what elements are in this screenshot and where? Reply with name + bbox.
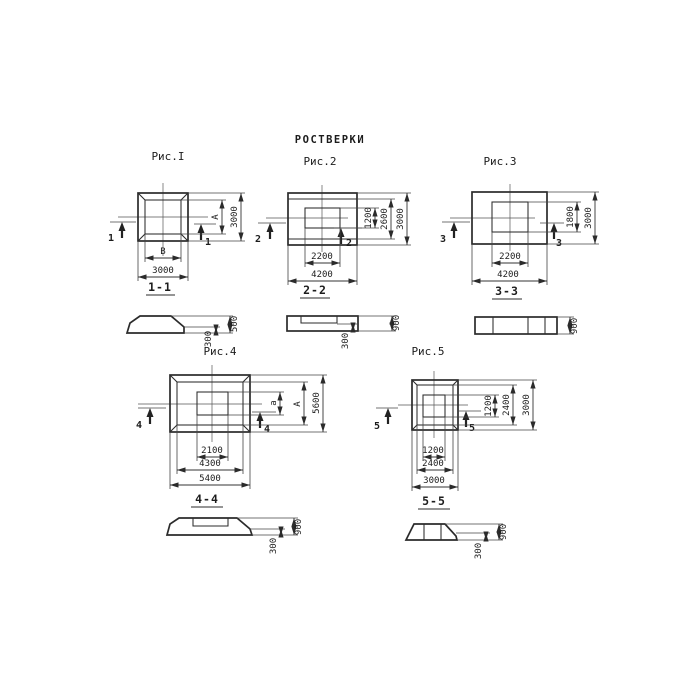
fig4-section-view: 900 300 xyxy=(167,518,304,554)
fig4-dim-mid-height: A xyxy=(293,401,303,407)
fig1-dim-outer-height: 3000 xyxy=(230,206,240,228)
fig5-section-dim-total: 900 xyxy=(499,524,509,540)
fig3-section-title: 3-3 xyxy=(492,284,522,299)
fig3-dim-inner-height: 1800 xyxy=(566,206,576,228)
fig2-dim-outer-width: 4200 xyxy=(311,270,333,280)
fig4-cut-mark-inner: 4 xyxy=(252,412,276,435)
fig4-section-dim-total: 900 xyxy=(294,519,304,535)
fig4-bottom-dims: 2100 4300 5400 xyxy=(170,415,250,489)
fig5-dim-inner-height: 1200 xyxy=(484,395,494,417)
fig3-caption: Рис.3 xyxy=(483,155,516,168)
fig3-cut-mark-inner: 3 xyxy=(540,223,564,249)
fig2-section-view: 300 900 xyxy=(287,315,402,349)
drawing-sheet: РОСТВЕРКИ Рис.I 1 1 xyxy=(0,0,700,700)
fig1-dim-outer-width: 3000 xyxy=(152,266,174,276)
fig4-dim-inner-height: a xyxy=(269,400,279,405)
fig1-cut-mark-inner: 1 xyxy=(194,224,216,248)
svg-text:2-2: 2-2 xyxy=(303,283,327,297)
svg-text:1-1: 1-1 xyxy=(148,280,172,294)
fig4-section-title: 4-4 xyxy=(191,492,223,507)
fig3-dim-outer-width: 4200 xyxy=(497,270,519,280)
fig2-dim-inner-width: 2200 xyxy=(311,252,333,262)
fig5-cut-mark-inner: 5 xyxy=(458,411,481,434)
fig5-dim-outer-width: 3000 xyxy=(423,476,445,486)
fig2-dim-outer-height: 3000 xyxy=(396,208,406,230)
fig1-dim-inner-width: B xyxy=(160,247,165,257)
fig3-right-dims: 1800 3000 xyxy=(528,192,599,244)
fig3-cut-label-inner: 3 xyxy=(556,238,562,249)
figure-3: Рис.3 3 3 2200 4200 xyxy=(440,155,599,334)
fig4-cut-label-inner: 4 xyxy=(264,424,270,435)
svg-text:3-3: 3-3 xyxy=(495,284,519,298)
fig5-cut-mark-left: 5 xyxy=(374,408,398,432)
fig2-dim-mid-height: 2600 xyxy=(380,208,390,230)
fig1-section-dim-total: 500 xyxy=(230,316,240,332)
fig4-dim-outer-width: 5400 xyxy=(199,474,221,484)
fig5-bottom-dims: 1200 2400 3000 xyxy=(412,417,458,491)
fig1-section-view: 500 300 xyxy=(127,316,240,347)
sheet-title: РОСТВЕРКИ xyxy=(295,134,365,146)
fig1-dim-inner-height: A xyxy=(211,214,221,220)
svg-text:5-5: 5-5 xyxy=(422,494,446,508)
grillage-drawing: РОСТВЕРКИ Рис.I 1 1 xyxy=(0,0,700,700)
fig4-section-dim-edge: 300 xyxy=(269,538,279,554)
fig1-section-title: 1-1 xyxy=(146,280,175,295)
fig5-caption: Рис.5 xyxy=(411,345,444,358)
fig2-bottom-dims: 2200 4200 xyxy=(288,228,357,285)
fig3-dim-outer-height: 3000 xyxy=(584,207,594,229)
fig5-dim-outer-height: 3000 xyxy=(522,394,532,416)
fig4-dim-outer-height: 5600 xyxy=(312,392,322,414)
fig5-plan-linework xyxy=(398,371,468,438)
fig4-dim-inner-width: 2100 xyxy=(201,446,223,456)
fig2-dim-inner-height: 1200 xyxy=(364,207,374,229)
fig3-bottom-dims: 2200 4200 xyxy=(472,232,547,285)
figure-2: Рис.2 2 2 2200 xyxy=(255,155,411,349)
fig4-dim-mid-width: 4300 xyxy=(199,459,221,469)
fig3-plan-linework xyxy=(450,184,547,251)
fig1-plan-linework xyxy=(118,183,208,256)
fig5-dim-mid-width: 2400 xyxy=(422,459,444,469)
fig3-cut-label-left: 3 xyxy=(440,234,446,245)
figure-5: Рис.5 5 5 xyxy=(374,345,537,559)
fig1-cut-mark-left: 1 xyxy=(108,222,136,244)
fig2-section-dim-total: 900 xyxy=(392,315,402,331)
fig1-cut-label-inner: 1 xyxy=(205,237,211,248)
fig2-section-title: 2-2 xyxy=(300,283,330,298)
fig2-cut-label-inner: 2 xyxy=(346,238,352,249)
fig4-cut-mark-left: 4 xyxy=(136,408,166,431)
fig2-cut-mark-left: 2 xyxy=(255,223,286,245)
fig2-caption: Рис.2 xyxy=(303,155,336,168)
fig4-cut-label-left: 4 xyxy=(136,420,142,431)
fig5-dim-inner-width: 1200 xyxy=(422,446,444,456)
fig1-cut-label-left: 1 xyxy=(108,233,114,244)
fig5-section-title: 5-5 xyxy=(418,494,450,509)
fig3-section-dim-total: 900 xyxy=(570,318,580,334)
svg-text:4-4: 4-4 xyxy=(195,492,219,506)
fig3-section-view: 900 xyxy=(475,317,580,334)
fig5-section-view: 900 300 xyxy=(406,524,509,559)
fig5-dim-mid-height: 2400 xyxy=(502,394,512,416)
figure-4: Рис.4 4 4 xyxy=(136,345,327,554)
fig4-caption: Рис.4 xyxy=(203,345,236,358)
fig5-cut-label-left: 5 xyxy=(374,421,380,432)
fig2-plan-linework xyxy=(266,185,357,252)
fig5-section-dim-edge: 300 xyxy=(474,543,484,559)
fig2-cut-label-left: 2 xyxy=(255,234,261,245)
figure-1: Рис.I 1 1 B xyxy=(108,150,245,347)
fig3-dim-inner-width: 2200 xyxy=(499,252,521,262)
fig3-cut-mark-left: 3 xyxy=(440,222,470,245)
fig1-caption: Рис.I xyxy=(151,150,184,163)
fig2-section-dim-edge: 300 xyxy=(341,333,351,349)
